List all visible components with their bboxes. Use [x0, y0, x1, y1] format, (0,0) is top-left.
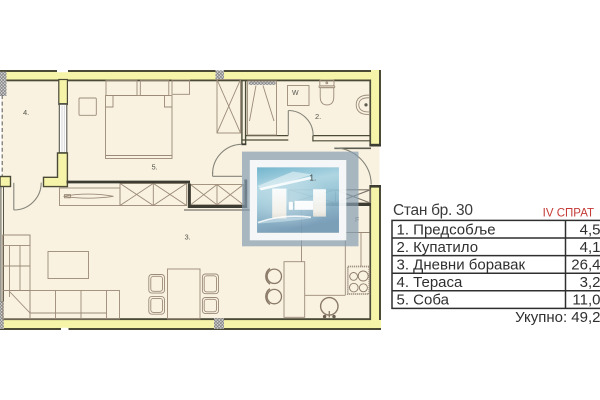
svg-text:Стан бр. 30: Стан бр. 30: [393, 202, 473, 219]
svg-text:4,1: 4,1: [580, 239, 600, 256]
svg-text:3. Дневни боравак: 3. Дневни боравак: [397, 257, 526, 274]
svg-text:3,2: 3,2: [580, 274, 600, 291]
svg-text:5. Соба: 5. Соба: [397, 292, 450, 309]
svg-text:11,0: 11,0: [572, 292, 600, 309]
svg-text:3.: 3.: [185, 233, 191, 242]
svg-text:1.: 1.: [310, 174, 317, 183]
svg-text:4. Тераса: 4. Тераса: [397, 274, 464, 291]
svg-text:Укупно: 49,2: Укупно: 49,2: [515, 309, 600, 326]
svg-text:26,4: 26,4: [571, 257, 600, 274]
svg-text:2. Купатило: 2. Купатило: [397, 239, 479, 256]
svg-text:4,5: 4,5: [580, 221, 600, 238]
svg-text:IV СПРАТ: IV СПРАТ: [543, 208, 594, 220]
svg-text:5.: 5.: [152, 163, 158, 172]
svg-text:W: W: [292, 90, 299, 97]
svg-text:1. Предсобље: 1. Предсобље: [397, 221, 496, 238]
svg-text:4.: 4.: [23, 108, 29, 117]
svg-text:2.: 2.: [315, 112, 321, 121]
